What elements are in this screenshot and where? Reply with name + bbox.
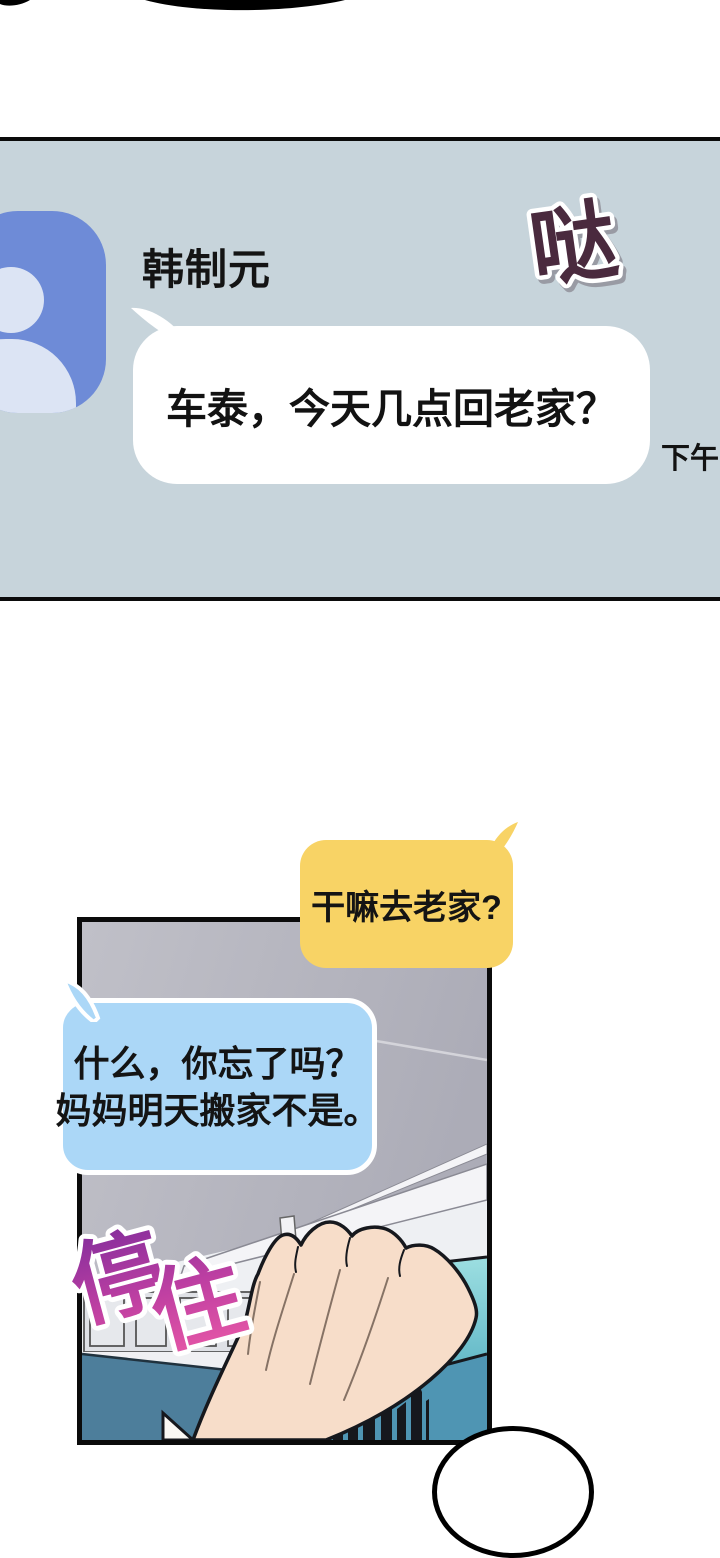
message-text: 干嘛去老家? xyxy=(311,880,502,929)
incoming-message-bubble: 车泰，今天几点回老家？ xyxy=(133,326,650,484)
timestamp: 下午 xyxy=(661,435,719,477)
incoming-message-bubble: 什么，你忘了吗？ 妈妈明天搬家不是。 xyxy=(58,998,377,1175)
message-line-2: 妈妈明天搬家不是。 xyxy=(56,1087,380,1134)
sfx-da-glyph: 哒 xyxy=(524,191,623,298)
messenger-panel: 韩制元 哒 车泰，今天几点回老家？ 下午 xyxy=(0,137,720,601)
sound-effect-stop: 停 住 xyxy=(52,1186,282,1406)
top-bubble-edge xyxy=(0,0,720,18)
sound-effect-da: 哒 xyxy=(505,176,650,311)
outgoing-message-bubble: 干嘛去老家? xyxy=(300,840,513,968)
contact-avatar xyxy=(0,211,106,413)
corner-speech-bubble xyxy=(432,1426,594,1558)
message-text: 车泰，今天几点回老家？ xyxy=(166,375,617,435)
message-line-1: 什么，你忘了吗？ xyxy=(73,1040,361,1087)
contact-name: 韩制元 xyxy=(142,236,271,297)
sfx-stop-glyph-2: 住 xyxy=(140,1244,255,1366)
bubble-tail-icon xyxy=(62,978,102,1022)
